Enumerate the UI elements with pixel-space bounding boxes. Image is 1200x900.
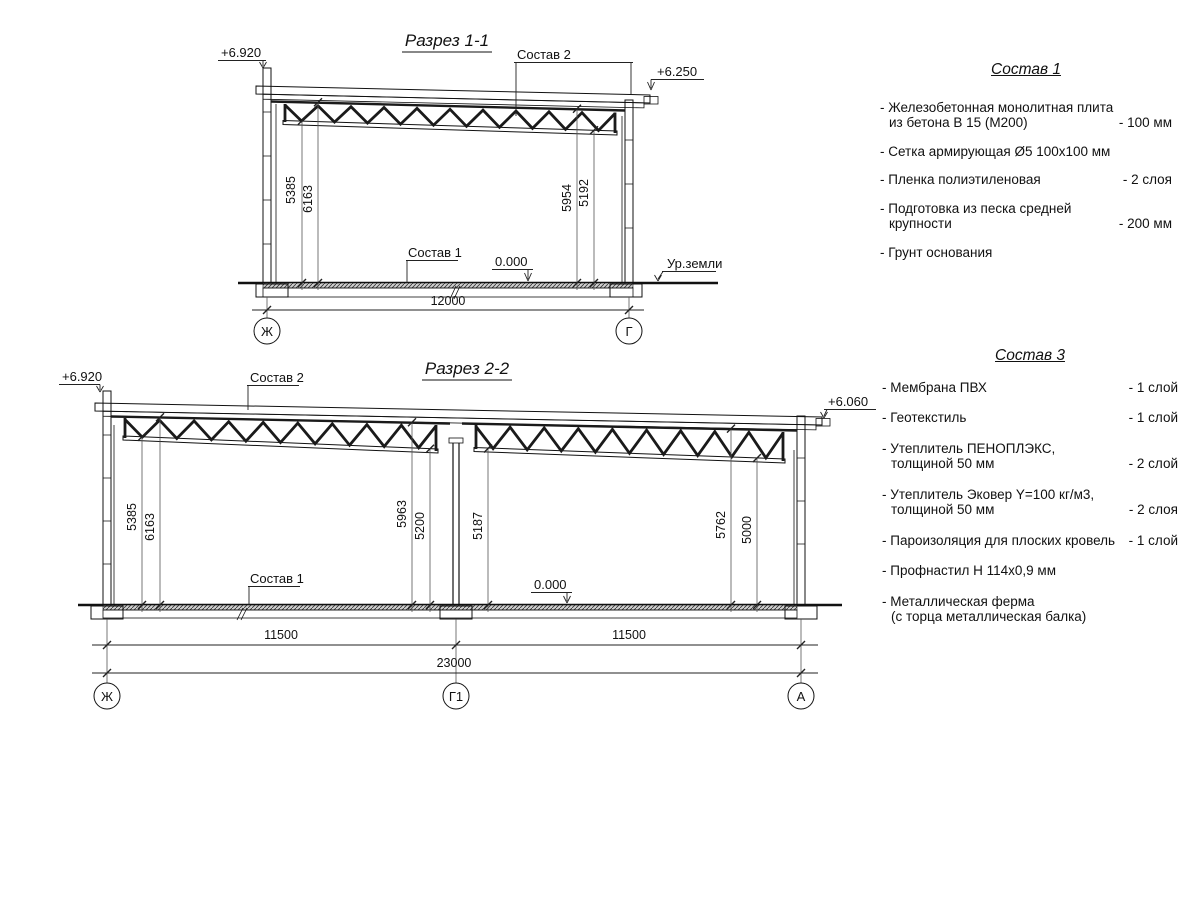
sostav2-label-1: Состав 2 <box>517 47 571 62</box>
item-text: - Металлическая ферма <box>882 594 1178 610</box>
list-item: - Пароизоляция для плоских кровель - 1 с… <box>882 533 1178 549</box>
item-value: - 1 слой <box>1129 380 1178 396</box>
item-text: - Утеплитель ПЕНОПЛЭКС, <box>882 441 1178 457</box>
item-value: - 1 слой <box>1129 533 1178 549</box>
item-value: - 200 мм <box>1119 216 1172 232</box>
roof-layers-band <box>95 403 822 425</box>
floor-1 <box>238 283 718 299</box>
dim-5192: 5192 <box>577 179 591 207</box>
span-12000: 12000 <box>431 294 466 308</box>
dim-5954: 5954 <box>560 184 574 212</box>
list-item: - Пленка полиэтиленовая - 2 слоя <box>880 172 1172 188</box>
elev-right-1: +6.250 <box>657 64 697 79</box>
floor-base <box>103 610 797 618</box>
item-text: - Утеплитель Эковер Y=100 кг/м3, <box>882 487 1178 503</box>
dim-5385: 5385 <box>284 176 298 204</box>
panel-1-title: Состав 1 <box>880 62 1172 78</box>
dim-5385: 5385 <box>125 503 139 531</box>
zero-level-2: 0.000 <box>534 577 567 592</box>
list-item: - Подготовка из песка средней крупности … <box>880 201 1172 232</box>
item-text: - Грунт основания <box>880 245 1172 261</box>
dims-vertical-1: 5385 6163 5954 5192 <box>284 98 598 290</box>
item-text: (с торца металлическая балка) <box>882 609 1178 625</box>
elev-right-2: +6.060 <box>828 394 868 409</box>
right-wall <box>625 100 633 283</box>
span-dims-2: 11500 11500 23000 Ж Г1 А <box>92 619 818 709</box>
dim-5000: 5000 <box>740 516 754 544</box>
span-11500-left: 11500 <box>264 628 298 642</box>
list-item: - Профнастил Н 114х0,9 мм <box>882 563 1178 579</box>
left-wall <box>103 391 111 605</box>
section-1-title: Разрез 1-1 <box>405 31 489 50</box>
dim-6163: 6163 <box>301 185 315 213</box>
sostav2-label-2: Состав 2 <box>250 370 304 385</box>
axis-zh-2: Ж <box>101 689 113 704</box>
roof-assembly-2 <box>95 403 830 430</box>
dims-vertical-2: 5385 6163 5963 5200 5187 5762 5000 <box>125 413 761 612</box>
middle-column <box>449 438 463 605</box>
truss-2-left <box>111 417 450 454</box>
section-2-2: Разрез 2-2 <box>59 359 876 709</box>
sostav1-label-1: Состав 1 <box>408 245 462 260</box>
panel-3-title: Состав 3 <box>882 348 1178 364</box>
list-item: - Металлическая ферма (с торца металличе… <box>882 594 1178 625</box>
dim-5963: 5963 <box>395 500 409 528</box>
axis-g1: Г1 <box>449 689 463 704</box>
item-text: - Сетка армирующая Ø5 100х100 мм <box>880 144 1172 160</box>
item-value: - 100 мм <box>1119 115 1172 131</box>
axis-g: Г <box>625 324 632 339</box>
truss-web <box>125 420 436 448</box>
axis-a: А <box>797 689 806 704</box>
composition-panel-1: Состав 1 - Железобетонная монолитная пли… <box>880 62 1172 273</box>
dim-5762: 5762 <box>714 511 728 539</box>
elev-left-2: +6.920 <box>62 369 102 384</box>
dim-5200: 5200 <box>413 512 427 540</box>
list-item: - Геотекстиль - 1 слой <box>882 410 1178 426</box>
item-value: - 2 слоя <box>1129 502 1178 518</box>
composition-panel-3: Состав 3 - Мембрана ПВХ - 1 слой - Геоте… <box>882 348 1178 640</box>
item-value: - 2 слой <box>1129 456 1178 472</box>
span-dim-1: 12000 Ж Г <box>252 294 644 344</box>
left-wall <box>263 68 271 283</box>
ground-label: Ур.земли <box>667 256 722 271</box>
item-value: - 2 слоя <box>1123 172 1172 188</box>
sostav1-label-2: Состав 1 <box>250 571 304 586</box>
span-23000: 23000 <box>437 656 472 670</box>
list-item: - Мембрана ПВХ - 1 слой <box>882 380 1178 396</box>
floor-slab <box>263 283 633 288</box>
dim-5187: 5187 <box>471 512 485 540</box>
item-text: - Железобетонная монолитная плита <box>880 100 1172 116</box>
axis-zh: Ж <box>261 324 273 339</box>
floor-2 <box>78 605 842 620</box>
list-item: - Железобетонная монолитная плита из бет… <box>880 100 1172 131</box>
list-item: - Утеплитель Эковер Y=100 кг/м3, толщино… <box>882 487 1178 518</box>
section-1-1: Разрез 1-1 <box>218 31 722 344</box>
profiled-sheet-band <box>103 411 816 430</box>
zero-level-1: 0.000 <box>495 254 528 269</box>
drawing-sheet: Разрез 1-1 <box>0 0 1200 900</box>
list-item: - Утеплитель ПЕНОПЛЭКС, толщиной 50 мм -… <box>882 441 1178 472</box>
list-item: - Сетка армирующая Ø5 100х100 мм <box>880 144 1172 160</box>
labels-1: +6.920 Состав 2 +6.250 Состав 1 0.000 Ур… <box>218 45 722 283</box>
dim-6163: 6163 <box>143 513 157 541</box>
item-text: - Профнастил Н 114х0,9 мм <box>882 563 1178 579</box>
right-wall <box>797 416 805 605</box>
span-11500-right: 11500 <box>612 628 646 642</box>
section-2-title: Разрез 2-2 <box>425 359 510 378</box>
list-item: - Грунт основания <box>880 245 1172 261</box>
item-value: - 1 слой <box>1129 410 1178 426</box>
truss-2-right <box>462 424 797 464</box>
item-text: - Подготовка из песка средней <box>880 201 1172 217</box>
elev-left-1: +6.920 <box>221 45 261 60</box>
